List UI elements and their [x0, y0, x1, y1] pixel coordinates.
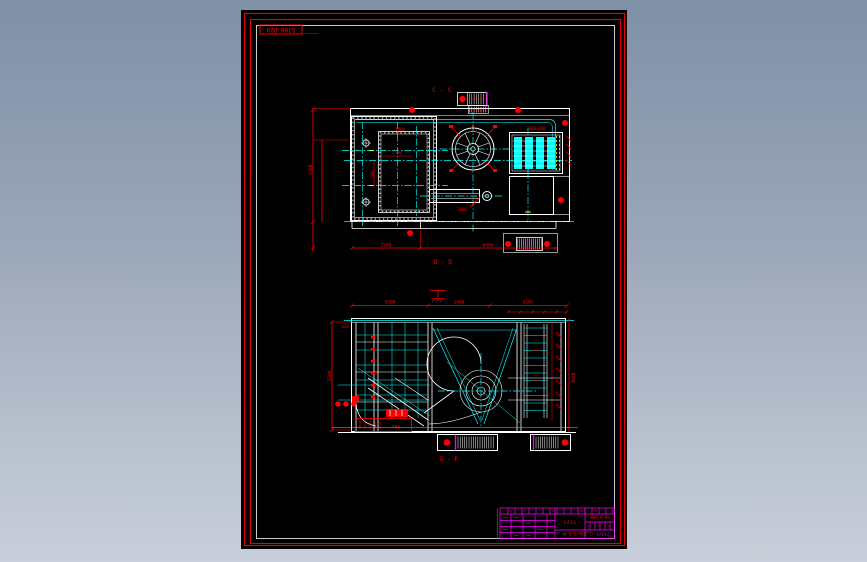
dim-text: 2000 — [457, 207, 467, 212]
dim-text: 2000×600 — [526, 126, 546, 131]
title-center-text: ???? — [563, 518, 576, 524]
cad-drawing: SJ00-D29 C - C — [0, 0, 867, 562]
title-qmarks: ????? — [596, 530, 610, 536]
dim-text: 5500 — [385, 300, 396, 306]
dim-text: 6400 — [483, 243, 494, 249]
dim-text: 1500 — [392, 150, 402, 155]
dim-text: 900 — [370, 170, 375, 178]
title-code-text: 68.H-OKB — [590, 515, 610, 520]
dim-text: 420 — [341, 324, 349, 329]
title-model-text: G-J50/9.8-M — [563, 530, 593, 536]
dim-text: 2400 — [454, 300, 465, 306]
dim-text: 3300 — [327, 370, 333, 381]
cad-viewport[interactable]: SJ00-D29 C - C — [0, 0, 867, 562]
plan-section-label-bottom: D - D — [434, 259, 452, 266]
dim-text: 1800 — [395, 127, 405, 132]
dim-text: 4100 — [523, 300, 533, 305]
plan-section-label: C - C — [432, 86, 452, 94]
dim-text: 3000 — [571, 372, 577, 383]
dim-text: 3300 — [308, 164, 314, 175]
section-label: E - E — [440, 456, 458, 463]
stamp-text: SJ00-D29 — [266, 26, 295, 33]
dim-text: 1500 — [381, 243, 392, 249]
